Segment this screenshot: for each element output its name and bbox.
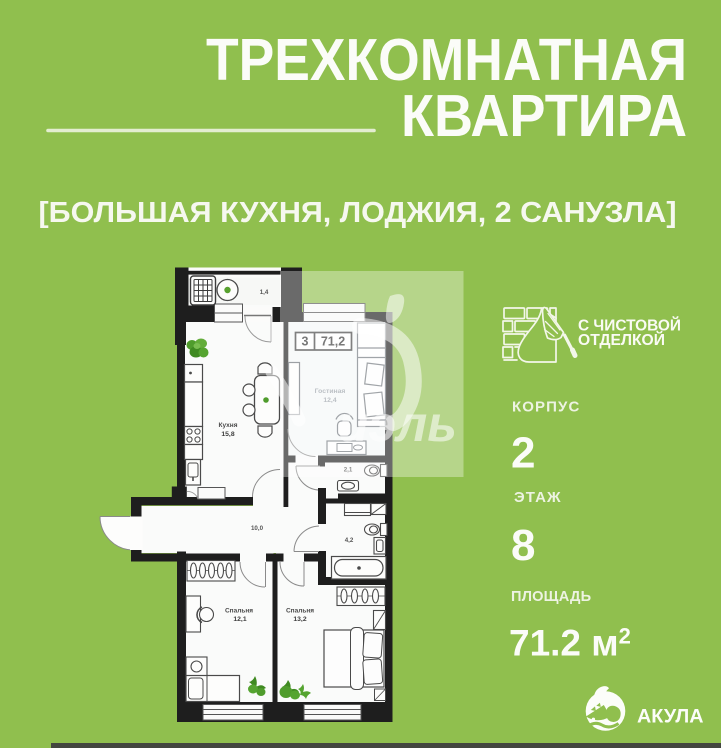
svg-text:8: 8 <box>511 521 535 570</box>
svg-text:[БОЛЬШАЯ КУХНЯ, ЛОДЖИЯ, 2 САНУ: [БОЛЬШАЯ КУХНЯ, ЛОДЖИЯ, 2 САНУЗЛА] <box>39 197 677 229</box>
svg-text:КВАРТИРА: КВАРТИРА <box>401 83 687 149</box>
svg-text:71.2 м2: 71.2 м2 <box>509 623 631 664</box>
svg-text:ЭТАЖ: ЭТАЖ <box>514 489 562 506</box>
svg-text:12,1: 12,1 <box>233 616 246 623</box>
svg-text:ПЛОЩАДЬ: ПЛОЩАДЬ <box>511 589 591 605</box>
svg-text:иэль: иэль <box>338 396 457 452</box>
svg-text:Спальня: Спальня <box>286 608 314 615</box>
svg-text:13,2: 13,2 <box>293 616 306 623</box>
svg-text:4,2: 4,2 <box>345 537 354 544</box>
svg-text:10,0: 10,0 <box>251 525 264 532</box>
svg-text:КОРПУС: КОРПУС <box>512 399 580 416</box>
svg-text:1,4: 1,4 <box>260 289 269 296</box>
svg-text:АКУЛА: АКУЛА <box>637 706 704 728</box>
svg-text:ОТДЕЛКОЙ: ОТДЕЛКОЙ <box>578 331 665 349</box>
svg-text:2: 2 <box>511 429 535 478</box>
svg-text:15,8: 15,8 <box>221 431 234 438</box>
svg-text:Спальня: Спальня <box>225 608 253 615</box>
svg-text:Кухня: Кухня <box>219 422 238 429</box>
